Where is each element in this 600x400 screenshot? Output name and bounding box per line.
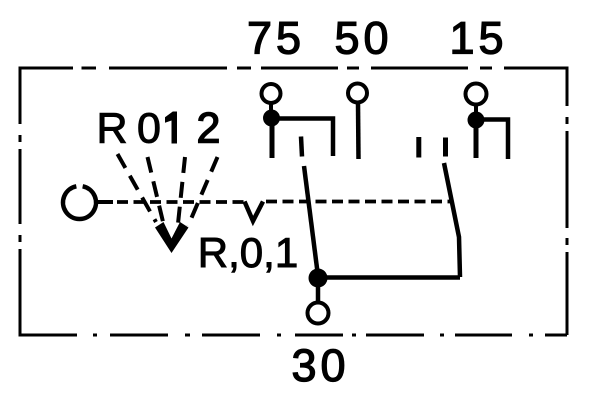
svg-text:50: 50 <box>334 13 392 64</box>
svg-text:75: 75 <box>247 13 305 64</box>
svg-text:2: 2 <box>197 105 221 153</box>
svg-text:R: R <box>96 105 127 153</box>
svg-text:30: 30 <box>291 340 349 391</box>
svg-text:R,0,1: R,0,1 <box>198 229 298 276</box>
svg-text:15: 15 <box>449 13 507 64</box>
svg-text:0: 0 <box>137 105 161 153</box>
